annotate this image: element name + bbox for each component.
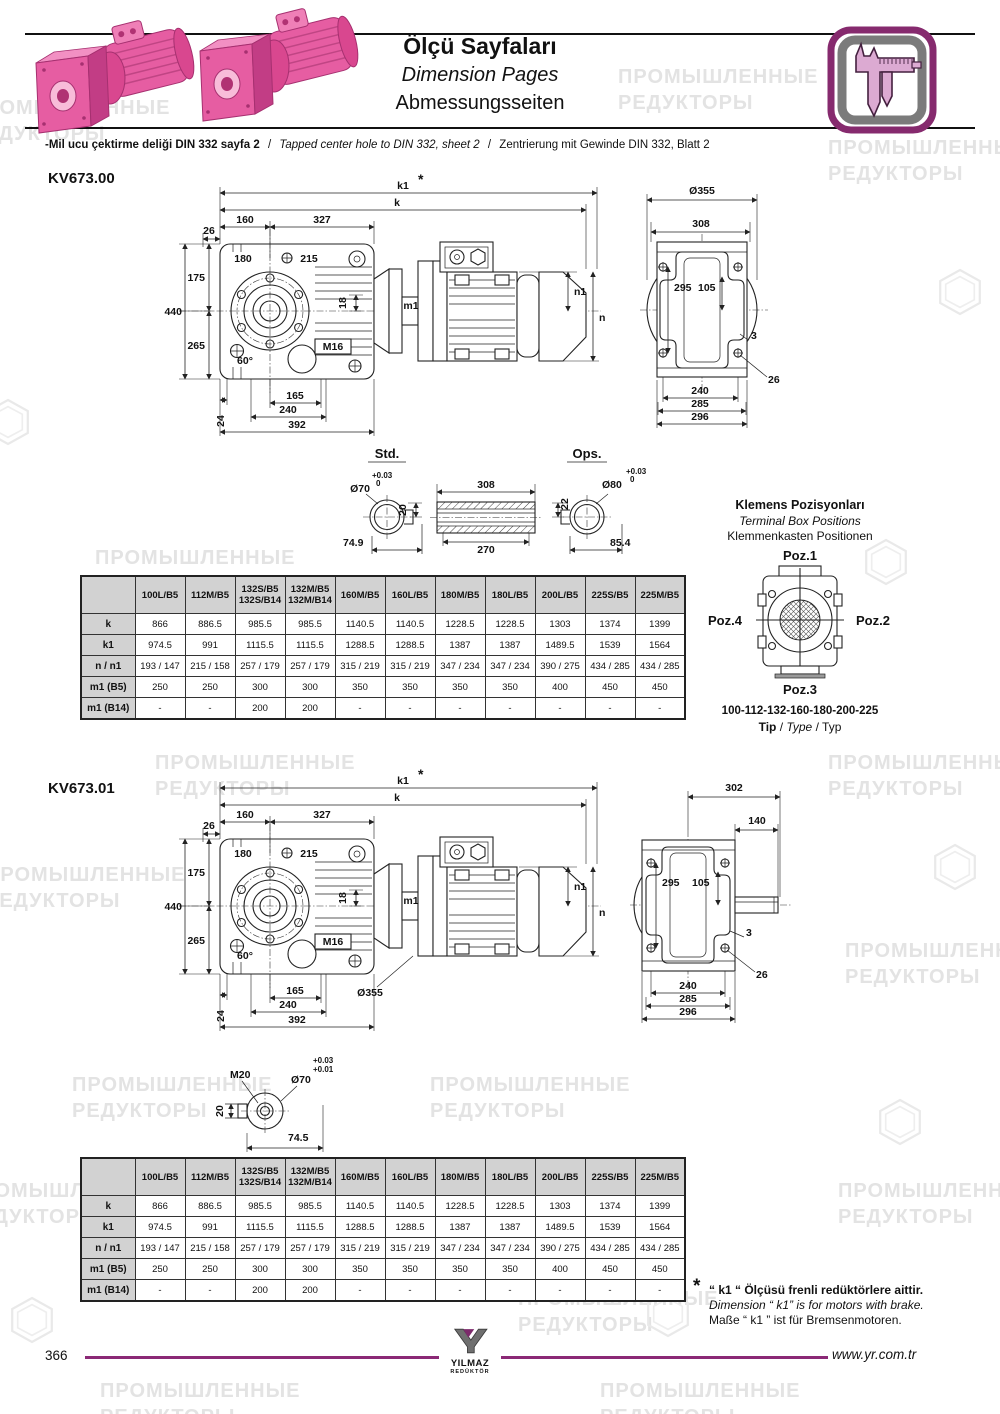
value-cell: 886.5 xyxy=(185,614,235,635)
value-cell: 1387 xyxy=(485,1217,535,1238)
value-cell: 1115.5 xyxy=(235,635,285,656)
dim-285: 285 xyxy=(679,993,697,1005)
kv67301-rear-view-drawing: 302 140 295 105 3 26 240 285 296 xyxy=(630,775,825,1035)
dim-308: 308 xyxy=(692,218,710,230)
value-cell: 315 / 219 xyxy=(335,656,385,677)
row-label: m1 (B14) xyxy=(81,698,135,720)
note-english: Tapped center hole to DIN 332, sheet 2 xyxy=(279,139,479,151)
value-cell: 1564 xyxy=(635,635,685,656)
dim-m16: M16 xyxy=(323,936,344,948)
value-cell: 1387 xyxy=(485,635,535,656)
ops-tolerance-lower: 0 xyxy=(630,475,635,484)
value-cell: 200 xyxy=(285,1280,335,1302)
k1-footnote: * “ k1 “ Ölçüsü frenli redüktörlere aitt… xyxy=(693,1283,993,1328)
corner-cell xyxy=(81,1158,135,1196)
value-cell: 347 / 234 xyxy=(435,656,485,677)
row-label: k1 xyxy=(81,1217,135,1238)
dim-440: 440 xyxy=(164,901,182,913)
value-cell: 866 xyxy=(135,1196,185,1217)
dim-140: 140 xyxy=(748,815,766,827)
tip-sep: / xyxy=(816,720,819,734)
footer-rule-right xyxy=(501,1356,828,1359)
din-note: -Mil ucu çektirme deliği DIN 332 sayfa 2… xyxy=(45,139,710,151)
tip-de: Typ xyxy=(822,720,841,734)
dim-k1-star: * xyxy=(418,766,424,782)
dim-dia355: Ø355 xyxy=(357,987,383,999)
dim-26: 26 xyxy=(203,225,215,237)
std-key-width: 20 xyxy=(397,504,409,516)
value-cell: 450 xyxy=(585,677,635,698)
value-cell: 434 / 285 xyxy=(635,1238,685,1259)
column-header: 225M/B5 xyxy=(635,576,685,614)
dim-215: 215 xyxy=(300,848,318,860)
value-cell: 1387 xyxy=(435,635,485,656)
poz1-label: Poz.1 xyxy=(700,548,900,563)
value-cell: 1140.5 xyxy=(385,614,435,635)
note-separator: / xyxy=(268,139,271,151)
value-cell: 1228.5 xyxy=(485,614,535,635)
table-row: k1974.59911115.51115.51288.51288.5138713… xyxy=(81,635,685,656)
kv67301-dimension-table: 100L/B5112M/B5132S/B5 132S/B14132M/B5 13… xyxy=(80,1157,686,1302)
value-cell: 1140.5 xyxy=(385,1196,435,1217)
value-cell: - xyxy=(485,698,535,720)
column-header: 225S/B5 xyxy=(585,576,635,614)
value-cell: 1374 xyxy=(585,1196,635,1217)
column-header: 200L/B5 xyxy=(535,1158,585,1196)
motor-front-view-diagram xyxy=(756,564,844,680)
value-cell: 1303 xyxy=(535,1196,585,1217)
tip-en: Type xyxy=(786,720,812,734)
shaft-dia: Ø70 xyxy=(291,1074,311,1086)
page-title: Ölçü Sayfaları xyxy=(300,33,660,60)
page-title-de: Abmessungsseiten xyxy=(300,92,660,115)
dim-26: 26 xyxy=(756,969,768,981)
value-cell: 250 xyxy=(135,1259,185,1280)
table-row: k1974.59911115.51115.51288.51288.5138713… xyxy=(81,1217,685,1238)
catalog-page: ПРОМЫШЛЕННЫЕРЕДУКТОРЫ ПРОМЫШЛЕННЫЕРЕДУКТ… xyxy=(0,0,1000,1414)
column-header: 132M/B5 132M/B14 xyxy=(285,576,335,614)
value-cell: 250 xyxy=(185,1259,235,1280)
value-cell: 1288.5 xyxy=(385,635,435,656)
dim-60deg: 60° xyxy=(237,950,253,962)
value-cell: 315 / 219 xyxy=(335,1238,385,1259)
dim-296: 296 xyxy=(679,1006,697,1018)
page-number: 366 xyxy=(45,1348,68,1363)
column-header: 112M/B5 xyxy=(185,576,235,614)
column-header: 225S/B5 xyxy=(585,1158,635,1196)
value-cell: - xyxy=(135,698,185,720)
yilmaz-logo: YILMAZ REDÜKTÖR xyxy=(441,1328,499,1376)
shaft-tolerance-lower: +0.01 xyxy=(313,1065,334,1074)
column-header: 132S/B5 132S/B14 xyxy=(235,1158,285,1196)
value-cell: 434 / 285 xyxy=(635,656,685,677)
value-cell: 347 / 234 xyxy=(485,1238,535,1259)
dim-m1: m1 xyxy=(403,300,418,312)
dim-105: 105 xyxy=(692,877,710,889)
dim-dia355: Ø355 xyxy=(689,185,715,197)
value-cell: 1140.5 xyxy=(335,1196,385,1217)
ops-key-width: 22 xyxy=(559,498,571,510)
dim-24: 24 xyxy=(215,415,227,427)
column-header: 100L/B5 xyxy=(135,576,185,614)
value-cell: 315 / 219 xyxy=(385,656,435,677)
value-cell: 300 xyxy=(285,1259,335,1280)
column-header: 112M/B5 xyxy=(185,1158,235,1196)
value-cell: 1115.5 xyxy=(285,635,335,656)
dim-265: 265 xyxy=(187,935,205,947)
value-cell: 1228.5 xyxy=(485,1196,535,1217)
value-cell: 1228.5 xyxy=(435,614,485,635)
value-cell: 300 xyxy=(285,677,335,698)
shaft-thread: M20 xyxy=(230,1069,251,1081)
dim-440: 440 xyxy=(164,306,182,318)
value-cell: - xyxy=(635,698,685,720)
value-cell: 985.5 xyxy=(235,614,285,635)
dim-302: 302 xyxy=(725,782,743,794)
value-cell: - xyxy=(335,698,385,720)
value-cell: 1539 xyxy=(585,1217,635,1238)
dim-165: 165 xyxy=(286,985,304,997)
dim-295: 295 xyxy=(662,877,680,889)
value-cell: - xyxy=(435,698,485,720)
dim-k: k xyxy=(394,197,400,209)
value-cell: 991 xyxy=(185,635,235,656)
section-heading-kv67301: KV673.01 xyxy=(48,780,115,797)
value-cell: 350 xyxy=(335,677,385,698)
section-heading-kv67300: KV673.00 xyxy=(48,170,115,187)
terminal-title-en: Terminal Box Positions xyxy=(700,514,900,528)
column-header: 160L/B5 xyxy=(385,576,435,614)
value-cell: 215 / 158 xyxy=(185,1238,235,1259)
value-cell: 215 / 158 xyxy=(185,656,235,677)
column-header: 180M/B5 xyxy=(435,1158,485,1196)
value-cell: 1288.5 xyxy=(335,1217,385,1238)
value-cell: 1288.5 xyxy=(335,635,385,656)
table-row: m1 (B5)250250300300350350350350400450450 xyxy=(81,1259,685,1280)
std-shaft-dia: Ø70 xyxy=(350,483,370,495)
terminal-title-de: Klemmenkasten Positionen xyxy=(700,529,900,543)
table-row: n / n1193 / 147215 / 158257 / 179257 / 1… xyxy=(81,1238,685,1259)
motor-sizes: 100-112-132-160-180-200-225 xyxy=(700,705,900,717)
value-cell: 1539 xyxy=(585,635,635,656)
dim-n: n xyxy=(599,312,605,324)
dim-26: 26 xyxy=(203,820,215,832)
dim-m1: m1 xyxy=(403,895,418,907)
value-cell: 315 / 219 xyxy=(385,1238,435,1259)
value-cell: 866 xyxy=(135,614,185,635)
dim-165: 165 xyxy=(286,390,304,402)
ops-shaft-dia: Ø80 xyxy=(602,479,622,491)
value-cell: 350 xyxy=(485,677,535,698)
dim-m16: M16 xyxy=(323,341,344,353)
table-row: n / n1193 / 147215 / 158257 / 179257 / 1… xyxy=(81,656,685,677)
value-cell: 1303 xyxy=(535,614,585,635)
kv67300-rear-view-drawing: Ø355 308 295 105 3 26 240 285 296 xyxy=(630,180,805,435)
value-cell: 250 xyxy=(135,677,185,698)
page-title-en: Dimension Pages xyxy=(300,64,660,87)
value-cell: - xyxy=(335,1280,385,1302)
dim-296: 296 xyxy=(691,411,709,423)
caliper-icon xyxy=(826,26,938,134)
value-cell: 257 / 179 xyxy=(235,656,285,677)
value-cell: 200 xyxy=(235,698,285,720)
dim-175: 175 xyxy=(187,272,205,284)
value-cell: 985.5 xyxy=(285,614,335,635)
row-label: m1 (B5) xyxy=(81,1259,135,1280)
page-title-block: Ölçü Sayfaları Dimension Pages Abmessung… xyxy=(300,33,660,115)
value-cell: 250 xyxy=(185,677,235,698)
value-cell: 350 xyxy=(385,1259,435,1280)
value-cell: - xyxy=(435,1280,485,1302)
dim-240: 240 xyxy=(679,980,697,992)
value-cell: 200 xyxy=(285,698,335,720)
value-cell: 390 / 275 xyxy=(535,1238,585,1259)
table-row: k866886.5985.5985.51140.51140.51228.5122… xyxy=(81,1196,685,1217)
column-header: 180L/B5 xyxy=(485,1158,535,1196)
logo-name: YILMAZ xyxy=(441,1359,499,1369)
website-url: www.yr.com.tr xyxy=(832,1347,916,1362)
shaft-detail-drawings: Std. Ops. Ø70 +0.03 0 20 74.9 308 270 Ø8… xyxy=(330,440,750,565)
kv67301-shaft-detail-drawing: M20 Ø70 +0.03 +0.01 20 74.5 xyxy=(185,1045,435,1157)
value-cell: - xyxy=(535,698,585,720)
column-header: 200L/B5 xyxy=(535,576,585,614)
value-cell: - xyxy=(535,1280,585,1302)
dim-265: 265 xyxy=(187,340,205,352)
value-cell: 1288.5 xyxy=(385,1217,435,1238)
column-header: 180L/B5 xyxy=(485,576,535,614)
poz2-label: Poz.2 xyxy=(856,613,890,628)
value-cell: 1374 xyxy=(585,614,635,635)
value-cell: 193 / 147 xyxy=(135,656,185,677)
dim-240: 240 xyxy=(279,999,297,1011)
value-cell: 347 / 234 xyxy=(435,1238,485,1259)
dim-327: 327 xyxy=(313,809,331,821)
column-header: 225M/B5 xyxy=(635,1158,685,1196)
footnote-star: * xyxy=(693,1279,700,1294)
kv67300-dimension-table: 100L/B5112M/B5132S/B5 132S/B14132M/B5 13… xyxy=(80,575,686,720)
row-label: n / n1 xyxy=(81,1238,135,1259)
table-row: m1 (B14)--200200------- xyxy=(81,1280,685,1302)
footnote-german: Maße “ k1 ” ist für Bremsenmotoren. xyxy=(709,1313,993,1328)
value-cell: 350 xyxy=(385,677,435,698)
value-cell: 350 xyxy=(335,1259,385,1280)
poz3-label: Poz.3 xyxy=(700,682,900,697)
row-label: k xyxy=(81,1196,135,1217)
value-cell: 1399 xyxy=(635,1196,685,1217)
gearmotor-product-photos xyxy=(28,4,346,138)
dim-295: 295 xyxy=(674,282,692,294)
table-row: m1 (B14)--200200------- xyxy=(81,698,685,720)
value-cell: 193 / 147 xyxy=(135,1238,185,1259)
value-cell: 1387 xyxy=(435,1217,485,1238)
value-cell: 991 xyxy=(185,1217,235,1238)
shaft-key-width: 20 xyxy=(214,1105,226,1117)
value-cell: 1489.5 xyxy=(535,1217,585,1238)
value-cell: 1228.5 xyxy=(435,1196,485,1217)
value-cell: 434 / 285 xyxy=(585,1238,635,1259)
dim-24: 24 xyxy=(215,1010,227,1022)
value-cell: 1564 xyxy=(635,1217,685,1238)
dim-180: 180 xyxy=(234,848,252,860)
row-label: m1 (B5) xyxy=(81,677,135,698)
value-cell: 450 xyxy=(585,1259,635,1280)
value-cell: - xyxy=(185,698,235,720)
footnote-english: Dimension “ k1” is for motors with brake… xyxy=(709,1298,993,1313)
dim-3: 3 xyxy=(746,927,752,939)
value-cell: - xyxy=(485,1280,535,1302)
row-label: m1 (B14) xyxy=(81,1280,135,1302)
value-cell: - xyxy=(185,1280,235,1302)
value-cell: - xyxy=(635,1280,685,1302)
dim-392: 392 xyxy=(288,1014,306,1026)
value-cell: 300 xyxy=(235,1259,285,1280)
dim-n1: n1 xyxy=(574,881,586,893)
kv67300-side-view-drawing: k1 * k 160 327 26 175 440 265 180 215 M1… xyxy=(165,163,635,448)
column-header: 180M/B5 xyxy=(435,576,485,614)
note-german: Zentrierung mit Gewinde DIN 332, Blatt 2 xyxy=(499,139,709,151)
std-tolerance-lower: 0 xyxy=(376,479,381,488)
tip-tr: Tip xyxy=(759,720,777,734)
value-cell: 1115.5 xyxy=(235,1217,285,1238)
value-cell: 257 / 179 xyxy=(285,656,335,677)
logo-subname: REDÜKTÖR xyxy=(441,1369,499,1376)
column-header: 132S/B5 132S/B14 xyxy=(235,576,285,614)
terminal-title-tr: Klemens Pozisyonları xyxy=(700,498,900,512)
dim-392: 392 xyxy=(288,419,306,431)
value-cell: 350 xyxy=(485,1259,535,1280)
column-header: 160M/B5 xyxy=(335,576,385,614)
poz4-label: Poz.4 xyxy=(708,613,742,628)
ops-label: Ops. xyxy=(573,446,602,461)
value-cell: 974.5 xyxy=(135,1217,185,1238)
yilmaz-logo-icon xyxy=(448,1328,492,1354)
dim-240: 240 xyxy=(691,385,709,397)
row-label: n / n1 xyxy=(81,656,135,677)
value-cell: 434 / 285 xyxy=(585,656,635,677)
note-separator: / xyxy=(488,139,491,151)
dim-60deg: 60° xyxy=(237,355,253,367)
hollow-shaft-inner: 270 xyxy=(477,544,495,556)
dim-3: 3 xyxy=(751,330,757,342)
dim-180: 180 xyxy=(234,253,252,265)
value-cell: 200 xyxy=(235,1280,285,1302)
dim-k1-star: * xyxy=(418,171,424,187)
value-cell: 985.5 xyxy=(235,1196,285,1217)
dim-n: n xyxy=(599,907,605,919)
footer-rule-left xyxy=(85,1356,439,1359)
column-header: 100L/B5 xyxy=(135,1158,185,1196)
dim-160: 160 xyxy=(236,214,254,226)
corner-cell xyxy=(81,576,135,614)
dim-160: 160 xyxy=(236,809,254,821)
dim-18: 18 xyxy=(337,297,349,309)
value-cell: - xyxy=(585,1280,635,1302)
value-cell: 257 / 179 xyxy=(285,1238,335,1259)
value-cell: 886.5 xyxy=(185,1196,235,1217)
value-cell: 400 xyxy=(535,1259,585,1280)
shaft-length: 74.5 xyxy=(288,1132,309,1144)
value-cell: 400 xyxy=(535,677,585,698)
value-cell: - xyxy=(585,698,635,720)
dim-285: 285 xyxy=(691,398,709,410)
value-cell: 347 / 234 xyxy=(485,656,535,677)
value-cell: 350 xyxy=(435,677,485,698)
table-row: m1 (B5)250250300300350350350350400450450 xyxy=(81,677,685,698)
dim-k1: k1 xyxy=(397,775,409,787)
dim-26: 26 xyxy=(768,374,780,386)
dim-k: k xyxy=(394,792,400,804)
value-cell: 1399 xyxy=(635,614,685,635)
footnote-turkish: “ k1 “ Ölçüsü frenli redüktörlere aittir… xyxy=(709,1283,993,1298)
hollow-shaft-length: 308 xyxy=(477,479,495,491)
tip-sep: / xyxy=(780,720,783,734)
dim-n1: n1 xyxy=(574,286,586,298)
column-header: 160L/B5 xyxy=(385,1158,435,1196)
value-cell: 450 xyxy=(635,677,685,698)
note-turkish: -Mil ucu çektirme deliği DIN 332 sayfa 2 xyxy=(45,139,260,151)
column-header: 132M/B5 132M/B14 xyxy=(285,1158,335,1196)
terminal-box-positions: Klemens Pozisyonları Terminal Box Positi… xyxy=(700,498,900,743)
ops-shaft-length: 85.4 xyxy=(610,537,631,549)
tip-type-typ: Tip / Type / Typ xyxy=(700,720,900,734)
dim-175: 175 xyxy=(187,867,205,879)
value-cell: 257 / 179 xyxy=(235,1238,285,1259)
dim-k1: k1 xyxy=(397,180,409,192)
dim-105: 105 xyxy=(698,282,716,294)
kv67301-side-view-drawing: k1 * k 160 327 26 175 440 265 180 215 M1… xyxy=(165,758,635,1043)
value-cell: 985.5 xyxy=(285,1196,335,1217)
value-cell: 1140.5 xyxy=(335,614,385,635)
dim-215: 215 xyxy=(300,253,318,265)
std-shaft-length: 74.9 xyxy=(343,537,364,549)
table-row: k866886.5985.5985.51140.51140.51228.5122… xyxy=(81,614,685,635)
value-cell: 390 / 275 xyxy=(535,656,585,677)
value-cell: 300 xyxy=(235,677,285,698)
value-cell: 1489.5 xyxy=(535,635,585,656)
dim-18: 18 xyxy=(337,892,349,904)
shaft-tolerance-upper: +0.03 xyxy=(313,1056,334,1065)
value-cell: - xyxy=(135,1280,185,1302)
row-label: k1 xyxy=(81,635,135,656)
std-label: Std. xyxy=(375,446,400,461)
value-cell: 1115.5 xyxy=(285,1217,335,1238)
column-header: 160M/B5 xyxy=(335,1158,385,1196)
row-label: k xyxy=(81,614,135,635)
dim-240: 240 xyxy=(279,404,297,416)
value-cell: 350 xyxy=(435,1259,485,1280)
dim-327: 327 xyxy=(313,214,331,226)
value-cell: 450 xyxy=(635,1259,685,1280)
value-cell: 974.5 xyxy=(135,635,185,656)
value-cell: - xyxy=(385,698,435,720)
value-cell: - xyxy=(385,1280,435,1302)
